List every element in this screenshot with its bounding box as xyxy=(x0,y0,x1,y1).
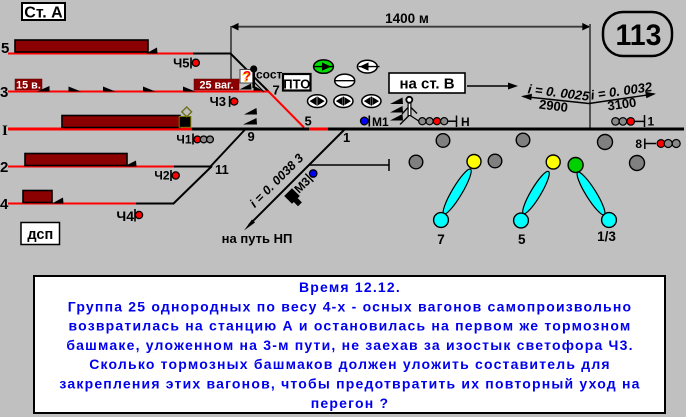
svg-text:Ч4: Ч4 xyxy=(116,208,134,224)
svg-text:8: 8 xyxy=(635,137,642,151)
svg-text:Сколько тормозных башмаков дол: Сколько тормозных башмаков должен уложит… xyxy=(89,356,611,372)
svg-text:7: 7 xyxy=(437,232,445,247)
svg-text:1/3: 1/3 xyxy=(597,229,616,244)
svg-text:ПТО: ПТО xyxy=(283,76,310,91)
svg-text:5: 5 xyxy=(305,114,312,129)
svg-text:Н: Н xyxy=(461,115,470,129)
svg-text:2: 2 xyxy=(0,159,8,176)
svg-text:перегон ?: перегон ? xyxy=(311,395,389,411)
svg-text:Время 12.12.: Время 12.12. xyxy=(299,279,401,295)
svg-text:3: 3 xyxy=(0,84,8,101)
svg-text:15 в.: 15 в. xyxy=(16,80,41,92)
svg-text:Ч5: Ч5 xyxy=(173,56,189,71)
svg-text:закрепления этих вагонов, чтоб: закрепления этих вагонов, чтобы предотвр… xyxy=(59,376,640,392)
svg-text:1400 м: 1400 м xyxy=(385,11,429,26)
svg-text:возвратилась на станцию А и ос: возвратилась на станцию А и остановилась… xyxy=(69,318,632,334)
svg-text:на ст. В: на ст. В xyxy=(399,76,454,93)
svg-text:дсп: дсп xyxy=(27,227,53,243)
svg-text:М1: М1 xyxy=(372,115,389,129)
svg-text:1: 1 xyxy=(648,115,655,129)
svg-text:11: 11 xyxy=(215,162,229,177)
svg-text:Ч2: Ч2 xyxy=(154,169,169,183)
svg-text:Ч1: Ч1 xyxy=(176,133,191,147)
svg-text:4: 4 xyxy=(0,196,9,213)
svg-text:7: 7 xyxy=(273,83,280,98)
svg-text:Ч3: Ч3 xyxy=(210,94,226,109)
svg-text:сост.: сост. xyxy=(256,68,285,82)
svg-text:I: I xyxy=(2,123,8,139)
svg-text:Ст. А: Ст. А xyxy=(24,5,63,22)
svg-text:1: 1 xyxy=(343,130,350,145)
svg-text:5: 5 xyxy=(518,232,526,247)
svg-text:Группа 25 однородных по весу 4: Группа 25 однородных по весу 4-х - осных… xyxy=(68,298,633,314)
svg-text:на путь НП: на путь НП xyxy=(222,231,293,246)
svg-text:башмаке, уложенном на 3-м пути: башмаке, уложенном на 3-м пути, не заеха… xyxy=(66,337,633,353)
svg-text:25 ваг.: 25 ваг. xyxy=(200,80,234,92)
svg-text:9: 9 xyxy=(248,129,255,144)
svg-text:113: 113 xyxy=(616,19,662,52)
svg-text:?: ? xyxy=(243,68,252,84)
